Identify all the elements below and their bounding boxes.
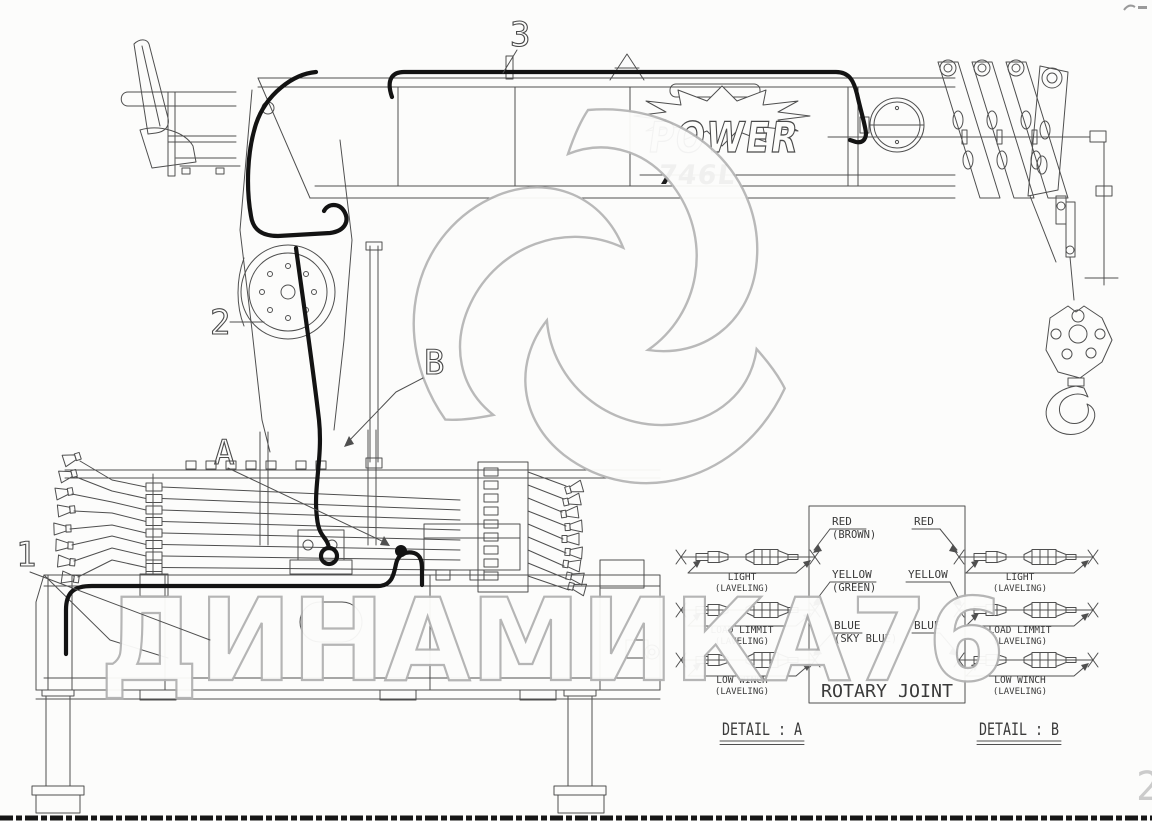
brand-watermark-text: ДИНАМИКА76 <box>100 574 1005 707</box>
wire-b1-main: RED <box>914 515 934 528</box>
hook-block <box>1030 196 1112 434</box>
callout-1: 1 <box>16 535 36 575</box>
callout-a: A <box>214 433 234 473</box>
corner-mark-dash <box>1138 6 1147 9</box>
detail-b-underline <box>977 741 1061 745</box>
cable-junction <box>395 545 407 557</box>
callout-b: B <box>424 343 444 383</box>
detail-b-row1-label: LIGHT <box>1006 572 1035 583</box>
outrigger-legs <box>32 690 606 813</box>
corner-number: 2 <box>1136 764 1152 810</box>
callout-3: 3 <box>510 15 530 55</box>
wire-a1-sub: (BROWN) <box>832 529 876 541</box>
cable-reel <box>860 98 924 152</box>
callout-2: 2 <box>210 303 230 343</box>
detail-b-title: DETAIL : B <box>979 720 1059 740</box>
detail-a-title: DETAIL : A <box>722 720 802 740</box>
corner-mark-icon <box>1124 6 1135 10</box>
diagram-canvas: POWER 746L <box>0 0 1152 821</box>
watermark-layer: ДИНАМИКА76 2 <box>100 6 1152 810</box>
callout-a-leader <box>228 468 386 543</box>
detail-a-underline <box>720 741 804 745</box>
callout-b-leader <box>346 378 423 444</box>
brand-swirl-logo <box>360 109 795 535</box>
operator-seat <box>121 40 240 176</box>
wire-a1-main: RED <box>832 515 852 528</box>
cable-column-loop <box>248 72 346 236</box>
cable-coil <box>321 548 337 564</box>
crane-wiring-diagram: POWER 746L <box>0 0 1152 821</box>
